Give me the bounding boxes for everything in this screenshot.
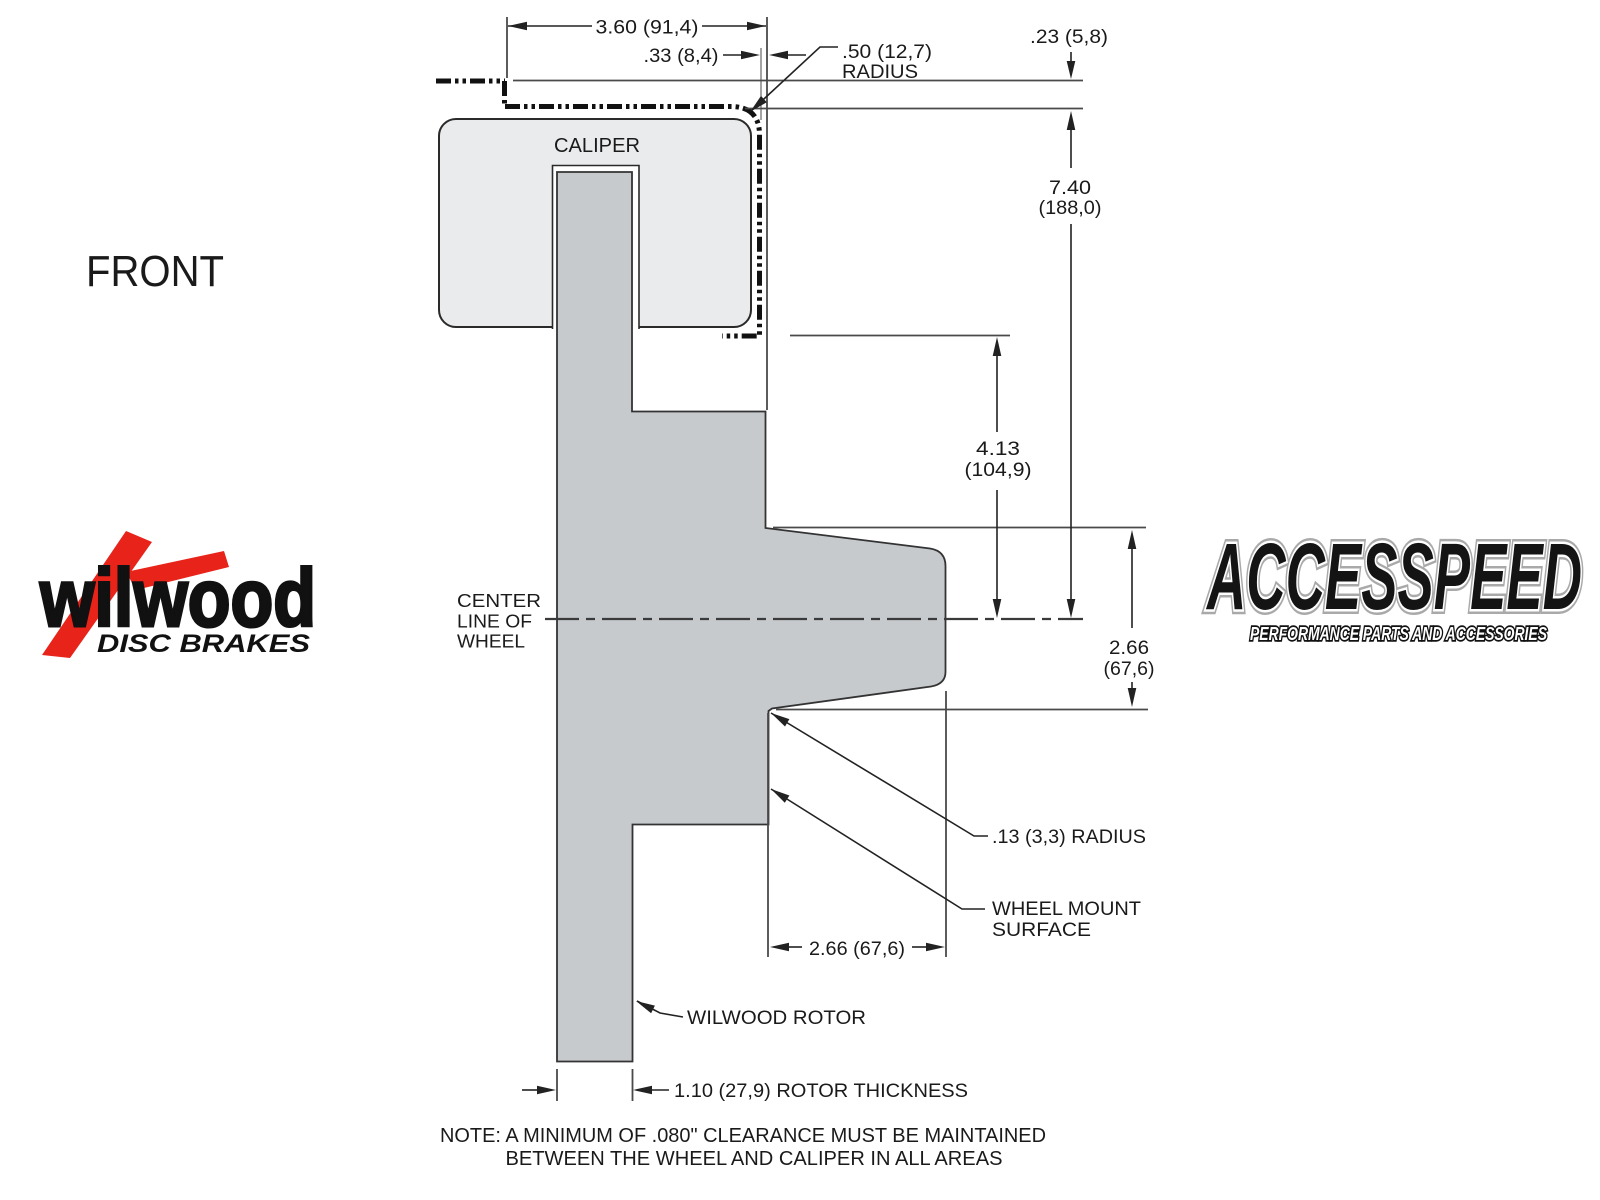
svg-text:.33 (8,4): .33 (8,4) bbox=[644, 45, 719, 67]
svg-text:7.40: 7.40 bbox=[1049, 177, 1091, 199]
svg-text:WILWOOD ROTOR: WILWOOD ROTOR bbox=[687, 1007, 866, 1029]
svg-text:RADIUS: RADIUS bbox=[842, 61, 918, 83]
svg-text:(104,9): (104,9) bbox=[965, 459, 1032, 481]
svg-text:ACCESSPEED: ACCESSPEED bbox=[1206, 524, 1582, 630]
svg-text:LINE OF: LINE OF bbox=[457, 611, 532, 632]
svg-text:2.66: 2.66 bbox=[1109, 637, 1149, 659]
svg-text:WHEEL MOUNT: WHEEL MOUNT bbox=[992, 898, 1141, 920]
svg-text:3.60 (91,4): 3.60 (91,4) bbox=[596, 17, 699, 39]
svg-text:4.13: 4.13 bbox=[976, 438, 1020, 460]
svg-text:CENTER: CENTER bbox=[457, 590, 541, 611]
svg-text:PERFORMANCE PARTS AND ACCESSOR: PERFORMANCE PARTS AND ACCESSORIES bbox=[1250, 623, 1547, 644]
svg-text:.50 (12,7): .50 (12,7) bbox=[842, 41, 932, 63]
svg-text:NOTE: A MINIMUM OF .080" CLEAR: NOTE: A MINIMUM OF .080" CLEARANCE MUST … bbox=[440, 1125, 1046, 1147]
svg-text:SURFACE: SURFACE bbox=[992, 919, 1091, 941]
svg-text:1.10 (27,9) ROTOR THICKNESS: 1.10 (27,9) ROTOR THICKNESS bbox=[674, 1080, 968, 1102]
svg-text:DISC BRAKES: DISC BRAKES bbox=[97, 630, 310, 658]
svg-text:FRONT: FRONT bbox=[86, 247, 224, 296]
svg-text:(188,0): (188,0) bbox=[1039, 197, 1102, 219]
svg-text:CALIPER: CALIPER bbox=[554, 134, 640, 157]
svg-text:2.66 (67,6): 2.66 (67,6) bbox=[809, 938, 905, 960]
svg-text:.13 (3,3) RADIUS: .13 (3,3) RADIUS bbox=[992, 826, 1146, 848]
svg-text:WHEEL: WHEEL bbox=[457, 631, 525, 652]
svg-text:BETWEEN THE WHEEL AND CALIPER: BETWEEN THE WHEEL AND CALIPER IN ALL ARE… bbox=[506, 1148, 1003, 1170]
svg-text:(67,6): (67,6) bbox=[1104, 658, 1155, 680]
svg-text:.23 (5,8): .23 (5,8) bbox=[1030, 26, 1108, 48]
